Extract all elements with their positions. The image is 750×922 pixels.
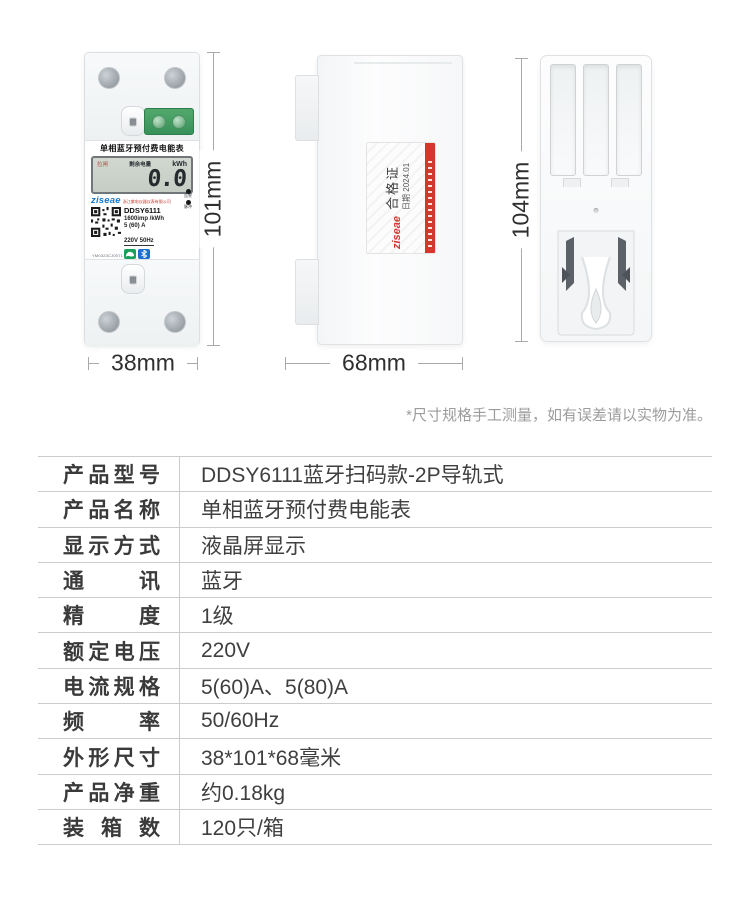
spec-table: 产品型号 DDSY6111蓝牙扫码款-2P导轨式 产品名称 单相蓝牙预付费电能表… [38, 456, 712, 845]
spec-label: 显示方式 [63, 530, 160, 560]
screw-icon [164, 311, 186, 333]
lcd-status: 拉闸 [97, 160, 108, 168]
dimension-104mm-label: 104mm [508, 152, 535, 249]
dimension-68mm-label: 68mm [330, 350, 418, 377]
spec-label: 电流规格 [63, 671, 160, 701]
terminal-block [144, 108, 194, 135]
latch-tab [563, 178, 581, 187]
product-showcase: 单相蓝牙预付费电能表 拉闸 剩余电量 kWh 0.0 ziseae 浙江紫电仪器… [0, 0, 750, 450]
spec-label: 产品名称 [63, 494, 160, 524]
screw-icon [164, 67, 186, 89]
din-rail-clip [552, 227, 640, 339]
spec-value: 38*101*68毫米 [180, 742, 341, 772]
spec-value: 约0.18kg [180, 777, 285, 807]
terminal-cover-bottom [85, 259, 199, 347]
terminal-screw-icon [152, 115, 166, 129]
terminal-cover-top [85, 53, 199, 141]
spec-row: 通讯 蓝牙 [38, 563, 712, 598]
meter-back-view [540, 55, 652, 342]
voltage-frequency: 220V 50Hz [124, 238, 154, 246]
certificate-brand-logo: ziseae [391, 216, 403, 249]
dimension-38mm: 38mm [88, 363, 198, 364]
pulse-label: 脉冲 [181, 205, 195, 209]
meter-side-view: ziseae 合格证 日期 2024.01 [295, 55, 463, 345]
spec-row: 装箱数 120只/箱 [38, 810, 712, 845]
certificate-red-strip [425, 143, 435, 253]
spec-value: 5(60)A、5(80)A [180, 671, 348, 701]
screw-icon [98, 67, 120, 89]
center-hole [594, 208, 599, 213]
spec-label: 装箱数 [63, 812, 160, 842]
spec-value: 220V [180, 639, 250, 663]
lcd-display: 拉闸 剩余电量 kWh 0.0 [91, 156, 193, 194]
spec-row: 频率 50/60Hz [38, 704, 712, 739]
spec-row: 电流规格 5(60)A、5(80)A [38, 669, 712, 704]
model-number: DDSY6111 [124, 207, 182, 216]
spec-label: 产品净重 [63, 777, 160, 807]
spec-row: 显示方式 液晶屏显示 [38, 528, 712, 563]
brand-logo: ziseae [91, 195, 121, 206]
certificate-date: 日期 2024.01 [401, 163, 412, 210]
qr-code [91, 207, 121, 237]
spec-value: 蓝牙 [180, 565, 243, 595]
meter-constant: 1600imp /kWh [124, 216, 182, 223]
seal-knob [121, 264, 145, 294]
dimension-38mm-label: 38mm [99, 350, 187, 377]
scan-pay-badge-icon [124, 249, 136, 259]
spec-value: 单相蓝牙预付费电能表 [180, 494, 411, 524]
dimension-68mm: 68mm [285, 363, 463, 364]
spec-label: 外形尺寸 [63, 742, 160, 772]
bluetooth-badge-icon [138, 249, 150, 259]
spec-row: 外形尺寸 38*101*68毫米 [38, 739, 712, 774]
measurement-disclaimer: *尺寸规格手工测量，如有误差请以实物为准。 [406, 404, 712, 425]
spec-value: 1级 [180, 600, 234, 630]
certificate-title: 合格证 [382, 163, 401, 210]
spec-label: 精度 [63, 600, 160, 630]
spec-value: DDSY6111蓝牙扫码款-2P导轨式 [180, 459, 504, 489]
mounting-ear [295, 75, 319, 141]
screw-icon [98, 311, 120, 333]
spec-row: 产品名称 单相蓝牙预付费电能表 [38, 492, 712, 527]
company-name: 浙江紫电仪器仪表有限公司 [123, 199, 171, 205]
serial-number: YM0323CJ0071 [92, 253, 123, 258]
spec-value: 50/60Hz [180, 709, 279, 733]
latch-tab [611, 178, 629, 187]
alarm-label: 告警 [181, 194, 195, 198]
spec-label: 产品型号 [63, 459, 160, 489]
spec-row: 产品型号 DDSY6111蓝牙扫码款-2P导轨式 [38, 457, 712, 492]
lcd-reading: 0.0 [96, 168, 188, 190]
spec-label: 频率 [63, 706, 160, 736]
spec-label: 额定电压 [63, 636, 160, 666]
spec-label: 通讯 [63, 565, 160, 595]
seal-knob [121, 106, 145, 136]
dimension-104mm: 104mm [521, 58, 522, 342]
current-spec: 5 (60) A [124, 223, 182, 230]
meter-faceplate: 单相蓝牙预付费电能表 拉闸 剩余电量 kWh 0.0 ziseae 浙江紫电仪器… [85, 141, 199, 259]
spec-row: 精度 1级 [38, 598, 712, 633]
vent-slots [550, 64, 642, 176]
meter-front-view: 单相蓝牙预付费电能表 拉闸 剩余电量 kWh 0.0 ziseae 浙江紫电仪器… [84, 52, 200, 346]
dimension-101mm-label: 101mm [200, 151, 227, 248]
spec-value: 120只/箱 [180, 812, 284, 842]
dimension-101mm: 101mm [213, 52, 214, 346]
terminal-screw-icon [172, 115, 186, 129]
spec-row: 产品净重 约0.18kg [38, 775, 712, 810]
mounting-ear [295, 259, 319, 325]
spec-value: 液晶屏显示 [180, 530, 306, 560]
spec-row: 额定电压 220V [38, 633, 712, 668]
meter-title: 单相蓝牙预付费电能表 [91, 143, 193, 154]
certificate-label: ziseae 合格证 日期 2024.01 [366, 142, 436, 254]
